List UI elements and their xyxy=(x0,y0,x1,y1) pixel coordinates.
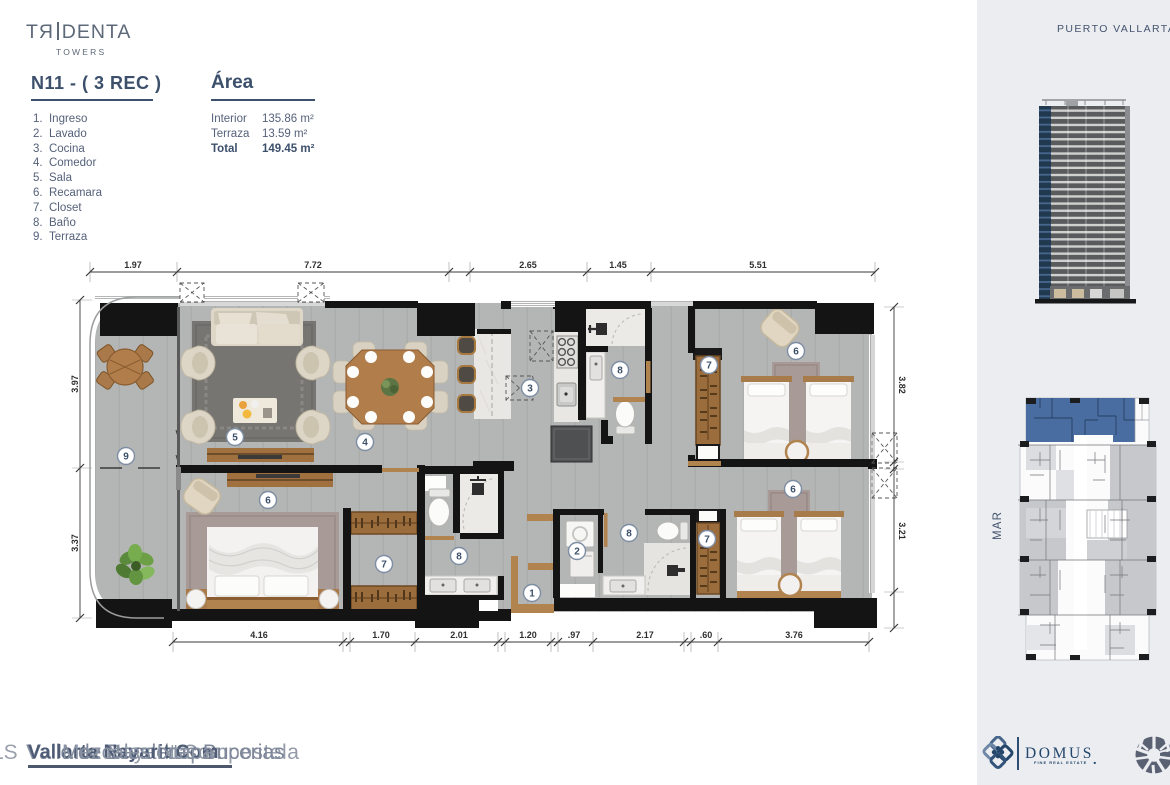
svg-text:1: 1 xyxy=(529,589,535,600)
svg-text:6: 6 xyxy=(790,485,796,496)
svg-text:2.65: 2.65 xyxy=(519,260,537,270)
svg-text:3: 3 xyxy=(527,384,533,395)
svg-text:8: 8 xyxy=(626,529,632,540)
svg-text:3.97: 3.97 xyxy=(70,375,80,393)
svg-text:3.82: 3.82 xyxy=(897,376,907,394)
svg-text:5: 5 xyxy=(232,433,238,444)
svg-text:4: 4 xyxy=(362,438,368,449)
svg-text:8: 8 xyxy=(617,366,623,377)
svg-text:9: 9 xyxy=(123,452,129,463)
svg-text:3.21: 3.21 xyxy=(897,522,907,540)
svg-text:3.76: 3.76 xyxy=(785,630,803,640)
svg-text:2: 2 xyxy=(574,547,580,558)
svg-text:2.01: 2.01 xyxy=(450,630,468,640)
svg-text:1.20: 1.20 xyxy=(519,630,537,640)
svg-text:4.16: 4.16 xyxy=(250,630,268,640)
svg-text:3.37: 3.37 xyxy=(70,534,80,552)
svg-text:.97: .97 xyxy=(568,630,581,640)
svg-text:5.51: 5.51 xyxy=(749,260,767,270)
svg-text:1.45: 1.45 xyxy=(609,260,627,270)
svg-text:.60: .60 xyxy=(700,630,713,640)
svg-text:7.72: 7.72 xyxy=(304,260,322,270)
svg-text:7: 7 xyxy=(381,560,387,571)
svg-text:6: 6 xyxy=(793,347,799,358)
svg-text:6: 6 xyxy=(265,496,271,507)
svg-text:7: 7 xyxy=(706,361,712,372)
svg-text:1.97: 1.97 xyxy=(124,260,142,270)
svg-text:1.70: 1.70 xyxy=(372,630,390,640)
svg-text:8: 8 xyxy=(456,552,462,563)
svg-text:7: 7 xyxy=(704,535,710,546)
svg-text:2.17: 2.17 xyxy=(636,630,654,640)
